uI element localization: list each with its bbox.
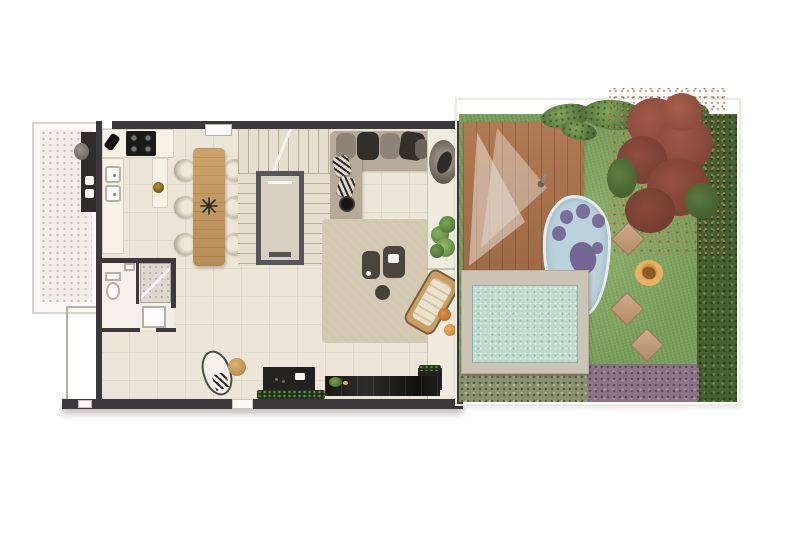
- cabinet-knob: [282, 380, 285, 383]
- planter-greenery: [419, 365, 441, 371]
- floorplan-render: [0, 0, 802, 535]
- prep-bowl: [153, 182, 164, 193]
- wall-bottom: [62, 399, 463, 409]
- bathroom-wall: [98, 328, 140, 332]
- laptop: [388, 254, 399, 263]
- bathroom-wall: [171, 258, 176, 308]
- shower: [140, 263, 171, 303]
- bathroom-wall: [156, 328, 176, 332]
- coffee-table: [362, 251, 380, 279]
- potted-plant: [429, 216, 457, 260]
- counter-accent: [343, 381, 348, 385]
- cooktop: [126, 131, 156, 156]
- paw-toe: [592, 214, 605, 228]
- grill-knob: [85, 189, 94, 198]
- table-centerpiece: [200, 197, 218, 215]
- chaise-stripes: [212, 371, 230, 391]
- sleeping-pet: [640, 264, 658, 281]
- toilet-tank: [105, 272, 121, 281]
- swimming-pool: [461, 270, 589, 374]
- shower-tray: [142, 306, 166, 328]
- elevator: [256, 171, 304, 265]
- floor-pouf: [375, 285, 390, 300]
- cabinet-knob: [275, 378, 278, 381]
- shrub-border-purple: [587, 364, 699, 402]
- exterior-outline: [66, 306, 68, 400]
- cabinet-object: [295, 373, 305, 380]
- sofa-cushion: [357, 132, 379, 160]
- cup: [366, 271, 371, 276]
- stair-treads-left: [238, 173, 258, 266]
- doormat: [232, 399, 253, 409]
- round-side-table: [339, 196, 355, 212]
- paw-toe: [560, 210, 573, 224]
- wall-left: [96, 121, 102, 399]
- pool-water: [472, 285, 578, 363]
- orange-cushion: [438, 308, 451, 321]
- planter-greenery: [257, 390, 325, 399]
- wall-top: [112, 121, 463, 129]
- sink-basin: [105, 185, 121, 202]
- media-cabinet: [263, 367, 315, 392]
- paw-toe: [592, 242, 603, 254]
- doormat: [78, 400, 92, 408]
- tan-pouf: [228, 358, 246, 376]
- grill-kettle: [74, 143, 89, 160]
- bathroom-wall: [136, 262, 139, 304]
- bath-shelf: [124, 263, 135, 271]
- paw-toe: [552, 226, 566, 241]
- toilet-bowl: [106, 282, 120, 300]
- garden: [455, 98, 741, 406]
- sofa-cushion: [380, 133, 400, 159]
- pet-bed: [635, 260, 663, 286]
- window-shelf: [205, 124, 232, 136]
- sink-basin: [105, 166, 121, 183]
- black-counter: [325, 376, 440, 396]
- paw-toe: [576, 204, 590, 219]
- elevator-detail: [268, 181, 292, 184]
- elevator-door: [269, 252, 291, 257]
- exterior-outline: [66, 306, 98, 308]
- grill-knob: [85, 176, 94, 185]
- counter-plant: [329, 377, 342, 387]
